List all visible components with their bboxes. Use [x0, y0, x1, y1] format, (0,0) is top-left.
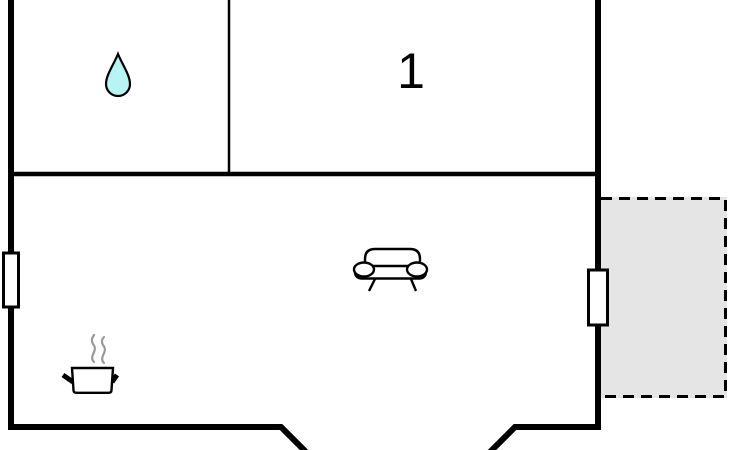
- floor-plan: 1: [0, 0, 730, 450]
- water-drop-shape: [106, 54, 130, 96]
- wall-bottom-with-entrance: [8, 427, 601, 450]
- pot-body: [72, 368, 113, 393]
- sofa-icon: [350, 245, 430, 295]
- window-left: [4, 253, 19, 307]
- terrace-area: [601, 197, 727, 398]
- steam-line-right: [102, 337, 105, 363]
- window-right: [589, 270, 608, 325]
- sofa-armrest-left: [354, 263, 374, 277]
- room-number-label: 1: [379, 46, 443, 96]
- steam-line-left: [92, 335, 95, 362]
- cooking-pot-icon: [61, 332, 119, 394]
- water-drop-icon: [103, 51, 133, 101]
- sofa-legs: [369, 279, 416, 291]
- sofa-armrest-right: [407, 263, 427, 277]
